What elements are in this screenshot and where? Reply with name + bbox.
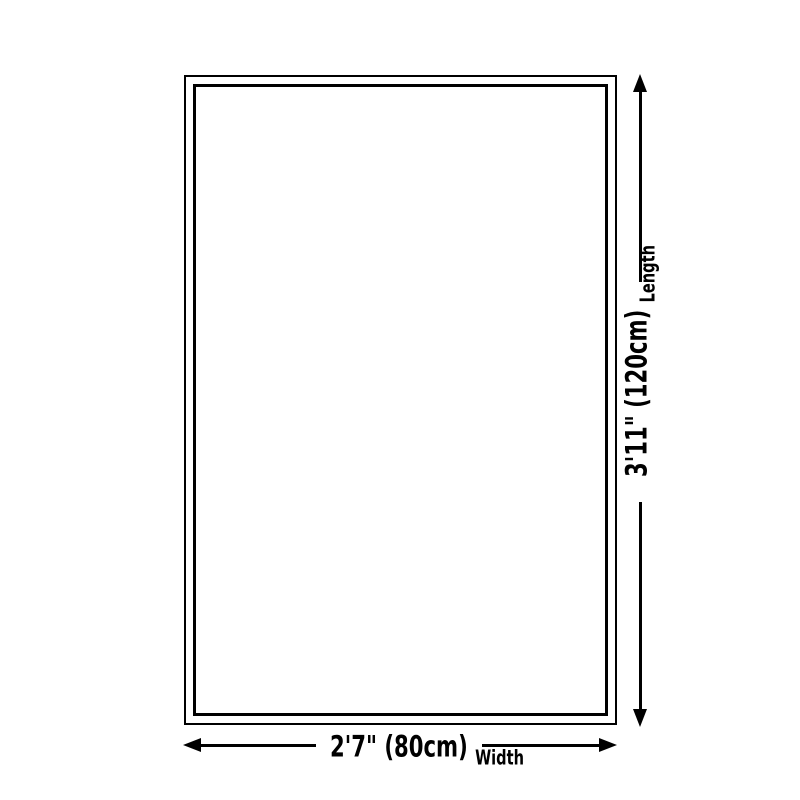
rug-outline-outer: [184, 75, 617, 725]
length-measurement-text: 3'11" (120cm): [620, 310, 653, 477]
rug-outline-inner: [193, 84, 608, 716]
length-dimension-label: 3'11" (120cm) Length: [620, 245, 653, 477]
width-caption-text: Width: [475, 746, 524, 769]
width-dimension-line-left: [200, 744, 316, 747]
width-dimension-label: 2'7" (80cm) Width: [330, 730, 524, 763]
arrow-down-icon: [633, 709, 647, 727]
length-dimension-line-bottom: [639, 502, 642, 713]
length-caption-text: Length: [636, 245, 659, 302]
rug-size-diagram: 3'11" (120cm) Length 2'7" (80cm) Width: [0, 0, 800, 800]
arrow-left-icon: [183, 738, 201, 752]
arrow-right-icon: [599, 738, 617, 752]
width-dimension-line-right: [482, 744, 599, 747]
width-measurement-text: 2'7" (80cm): [330, 730, 468, 763]
